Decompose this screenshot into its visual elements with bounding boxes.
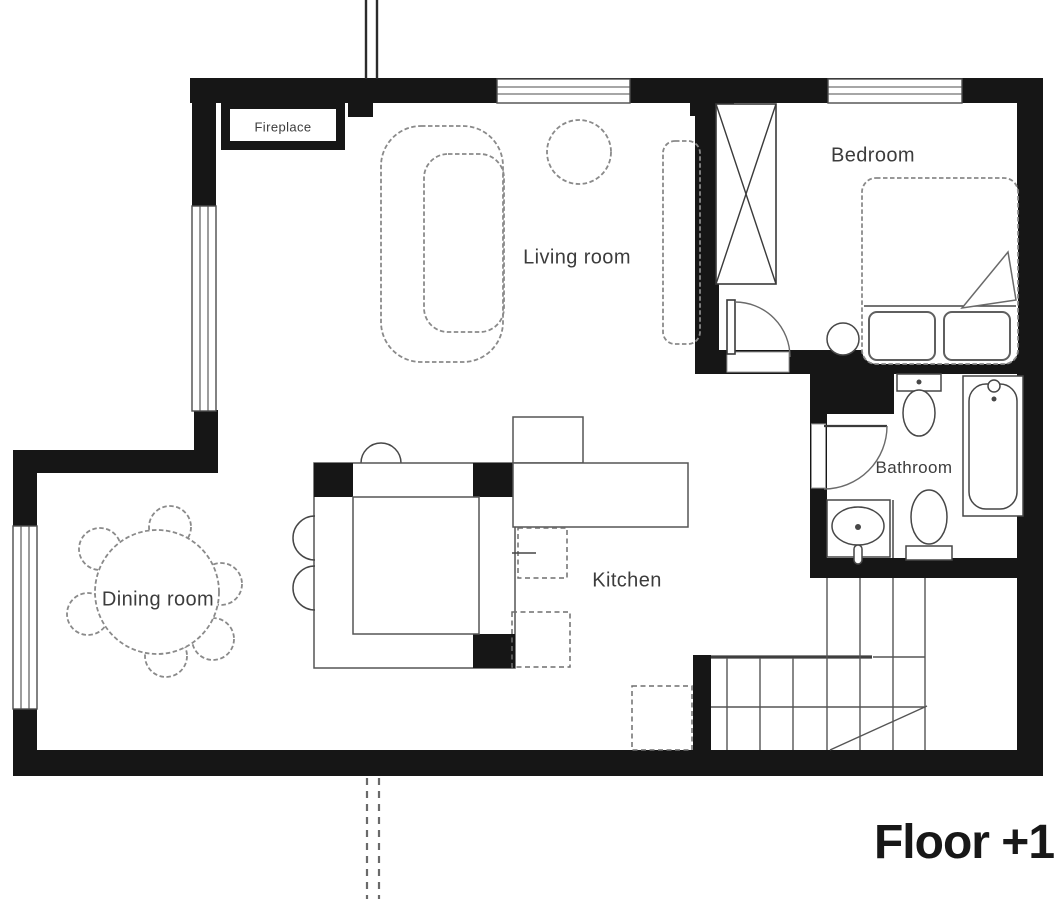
door-swing-icon <box>727 300 790 372</box>
bar-stool-icon <box>293 566 315 610</box>
floor-title: Floor +1 <box>872 818 1056 868</box>
nightstand-icon <box>827 323 859 355</box>
door-swing-icon <box>812 424 888 489</box>
toilet-icon <box>897 374 941 436</box>
bathtub-icon <box>963 376 1023 516</box>
storage-box-icon <box>632 686 692 750</box>
drain-pipe-icon <box>367 778 379 899</box>
window-icon <box>497 79 630 103</box>
pillow-icon <box>944 312 1010 360</box>
bathroom-label: Bathroom <box>876 458 953 478</box>
pillow-icon <box>869 312 935 360</box>
staircase-icon <box>711 578 927 750</box>
oven-icon <box>512 528 567 578</box>
side-table-icon <box>547 120 611 184</box>
wardrobe-icon <box>716 104 776 284</box>
window-icon <box>828 79 962 103</box>
floor-plan: Fireplace Living room Bedroom Bathroom K… <box>0 0 1056 899</box>
bed-icon <box>862 178 1018 364</box>
bedroom-label: Bedroom <box>831 145 915 168</box>
fireplace-label: Fireplace <box>254 120 311 135</box>
kitchen-island-icon <box>293 443 515 668</box>
kitchen-counter-icon <box>513 417 688 527</box>
floor-plan-canvas <box>0 0 1056 899</box>
bar-stool-icon <box>361 443 401 463</box>
sink-icon <box>827 500 890 564</box>
bidet-icon <box>906 490 952 560</box>
bar-stool-icon <box>293 516 315 560</box>
sofa-icon <box>381 126 504 362</box>
window-icon <box>13 526 37 709</box>
dining-room-label: Dining room <box>102 589 214 612</box>
tv-console-icon <box>663 141 700 344</box>
chimney-pipe-icon <box>366 0 377 79</box>
living-room-label: Living room <box>523 247 631 270</box>
window-icon <box>192 206 216 411</box>
dishwasher-icon <box>512 612 570 667</box>
kitchen-label: Kitchen <box>592 570 662 593</box>
